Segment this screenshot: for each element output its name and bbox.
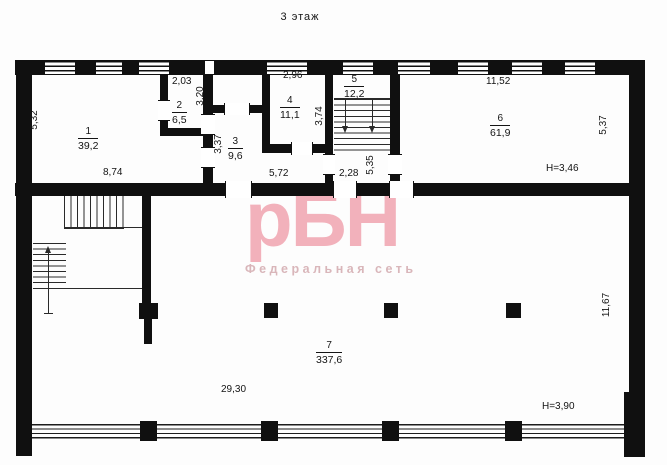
dim-room7-width: 29,30: [221, 384, 246, 395]
wall-corner-bottom-right: [624, 392, 645, 457]
window-segment: [96, 61, 122, 74]
wall-middle-band: [15, 183, 645, 196]
stairs-landing-line: [64, 227, 142, 228]
room-label-6: 661,9: [490, 113, 510, 139]
door-room4: [291, 142, 313, 155]
window-pier: [505, 421, 522, 441]
stairs-room5-line: [345, 100, 346, 128]
stairs-arrow-up-icon: [45, 246, 51, 253]
window-segment: [512, 61, 542, 74]
door-room4-room5: [323, 154, 335, 175]
column: [506, 303, 521, 318]
dim-room7-height: 11,67: [601, 290, 613, 320]
window-segment: [139, 61, 169, 74]
wall-stairwell-right: [142, 196, 151, 303]
window-pier: [140, 421, 157, 441]
dim-room6-height: 5,37: [598, 110, 610, 140]
dim-room6-width: 11,52: [486, 76, 510, 87]
stairs-room5-line: [372, 100, 373, 128]
room-label-7: 7337,6: [316, 340, 342, 366]
dim-height-top: H=3,46: [546, 163, 579, 174]
window-segment: [45, 61, 75, 74]
column: [264, 303, 278, 318]
dim-room3-height: 3,37: [213, 129, 225, 159]
stairs-direction-line: [48, 252, 49, 314]
page-title: 3 этаж: [255, 11, 345, 23]
stairs-arrow-down-icon: [369, 126, 375, 133]
dim-room2-width: 2,03: [172, 76, 191, 87]
window-pier: [382, 421, 399, 441]
floor-plan: 3 этаж рБН Федеральная сеть: [0, 0, 667, 465]
watermark-subtitle: Федеральная сеть: [245, 262, 417, 276]
wall-stub-below-column: [144, 319, 152, 344]
dim-room4-width: 2,96: [283, 70, 302, 81]
column-stairwell: [139, 303, 158, 319]
room-label-4: 411,1: [280, 95, 300, 121]
window-segment: [343, 61, 373, 74]
window-segment: [458, 61, 488, 74]
window-band-bottom: [32, 424, 629, 439]
room-label-2: 26,5: [172, 100, 187, 126]
watermark: рБН Федеральная сеть: [245, 186, 417, 276]
dim-room4-height: 3,74: [314, 101, 326, 131]
window-pier: [261, 421, 278, 441]
door-band-left: [225, 181, 252, 198]
dim-room2-height: 3,20: [195, 81, 207, 111]
dim-height-bottom: H=3,90: [542, 401, 575, 412]
dim-room1-width: 8,74: [103, 167, 122, 178]
dim-room1-height: 5,32: [29, 105, 41, 135]
window-segment: [398, 61, 430, 74]
door-band-center: [333, 181, 357, 198]
dim-room5-height: 5,35: [365, 150, 377, 180]
room-label-5: 512,2: [344, 74, 364, 100]
room-label-3: 39,6: [228, 136, 243, 162]
door-room1-room2: [158, 100, 170, 121]
door-room3-top: [224, 103, 250, 115]
stairs-landing-line: [33, 288, 142, 289]
room-label-1: 139,2: [78, 126, 98, 152]
door-room5-room6: [388, 154, 402, 175]
window-segment: [565, 61, 595, 74]
stairs-direction-tick: [44, 313, 53, 314]
stairs-room5: [334, 98, 390, 151]
dim-room5-width: 2,28: [339, 168, 358, 179]
door-band-right: [389, 181, 414, 198]
wall-shaft-cut: [205, 61, 214, 74]
stairs-arrow-down-icon: [342, 126, 348, 133]
stairs-main-upper-flight: [64, 196, 124, 229]
wall-room3-room4: [262, 75, 270, 153]
dim-corridor-width: 5,72: [269, 168, 288, 179]
column: [384, 303, 398, 318]
